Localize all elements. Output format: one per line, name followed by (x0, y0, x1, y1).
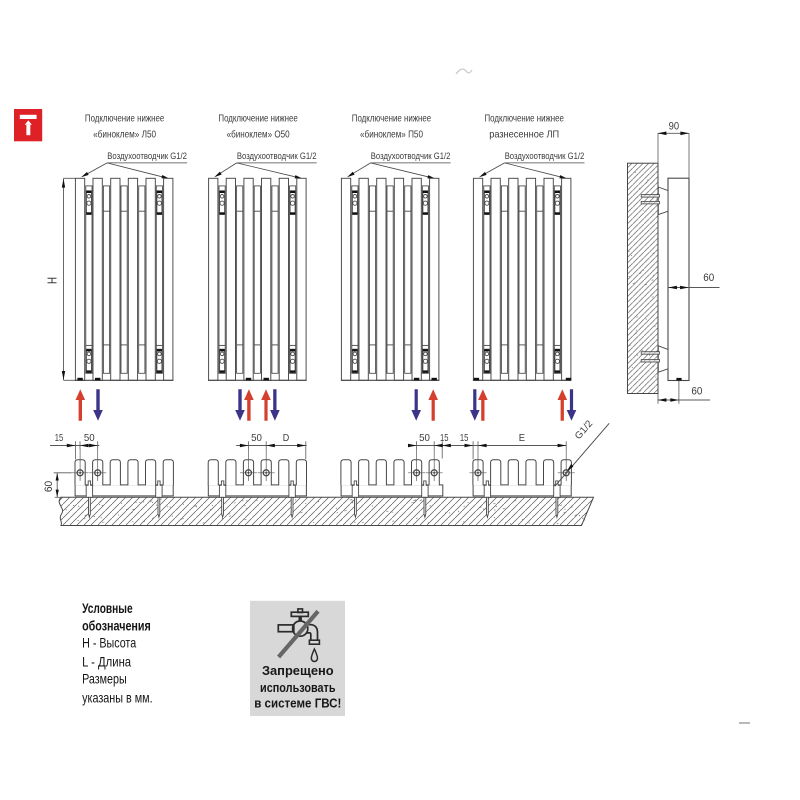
svg-text:Подключение нижнее: Подключение нижнее (352, 114, 432, 125)
svg-text:50: 50 (84, 432, 95, 444)
svg-text:указаны в мм.: указаны в мм. (82, 690, 153, 706)
svg-text:Воздухоотводчик G1/2: Воздухоотводчик G1/2 (371, 150, 451, 161)
svg-text:«биноклем» О50: «биноклем» О50 (227, 128, 290, 140)
svg-text:15: 15 (440, 432, 449, 444)
svg-text:Воздухоотводчик G1/2: Воздухоотводчик G1/2 (505, 150, 585, 161)
svg-text:60: 60 (691, 386, 702, 398)
svg-text:60: 60 (43, 481, 55, 492)
svg-text:15: 15 (460, 432, 469, 444)
svg-text:обозначения: обозначения (82, 618, 151, 634)
svg-text:15: 15 (55, 432, 64, 444)
svg-text:60: 60 (703, 272, 714, 284)
svg-text:Размеры: Размеры (82, 671, 127, 687)
svg-text:«биноклем» П50: «биноклем» П50 (360, 128, 423, 140)
svg-text:использовать: использовать (260, 680, 336, 695)
svg-text:в системе ГВС!: в системе ГВС! (254, 696, 341, 711)
svg-text:E: E (519, 432, 525, 444)
svg-text:Условные: Условные (82, 600, 133, 616)
svg-text:H: H (45, 277, 60, 284)
svg-text:90: 90 (669, 120, 680, 132)
svg-text:Н - Высота: Н - Высота (82, 635, 136, 651)
svg-text:D: D (283, 432, 290, 444)
svg-text:Подключение нижнее: Подключение нижнее (218, 114, 298, 125)
svg-text:50: 50 (419, 432, 430, 444)
svg-text:разнесенное ЛП: разнесенное ЛП (489, 129, 559, 140)
svg-text:Подключение нижнее: Подключение нижнее (85, 114, 165, 125)
svg-text:Воздухоотводчик G1/2: Воздухоотводчик G1/2 (107, 150, 187, 161)
svg-text:50: 50 (251, 432, 262, 444)
svg-text:Воздухоотводчик G1/2: Воздухоотводчик G1/2 (237, 150, 317, 161)
svg-text:«биноклем» Л50: «биноклем» Л50 (93, 128, 156, 140)
svg-text:L - Длина: L - Длина (82, 653, 131, 669)
svg-text:Подключение нижнее: Подключение нижнее (485, 114, 565, 125)
svg-text:Запрещено: Запрещено (262, 663, 334, 678)
